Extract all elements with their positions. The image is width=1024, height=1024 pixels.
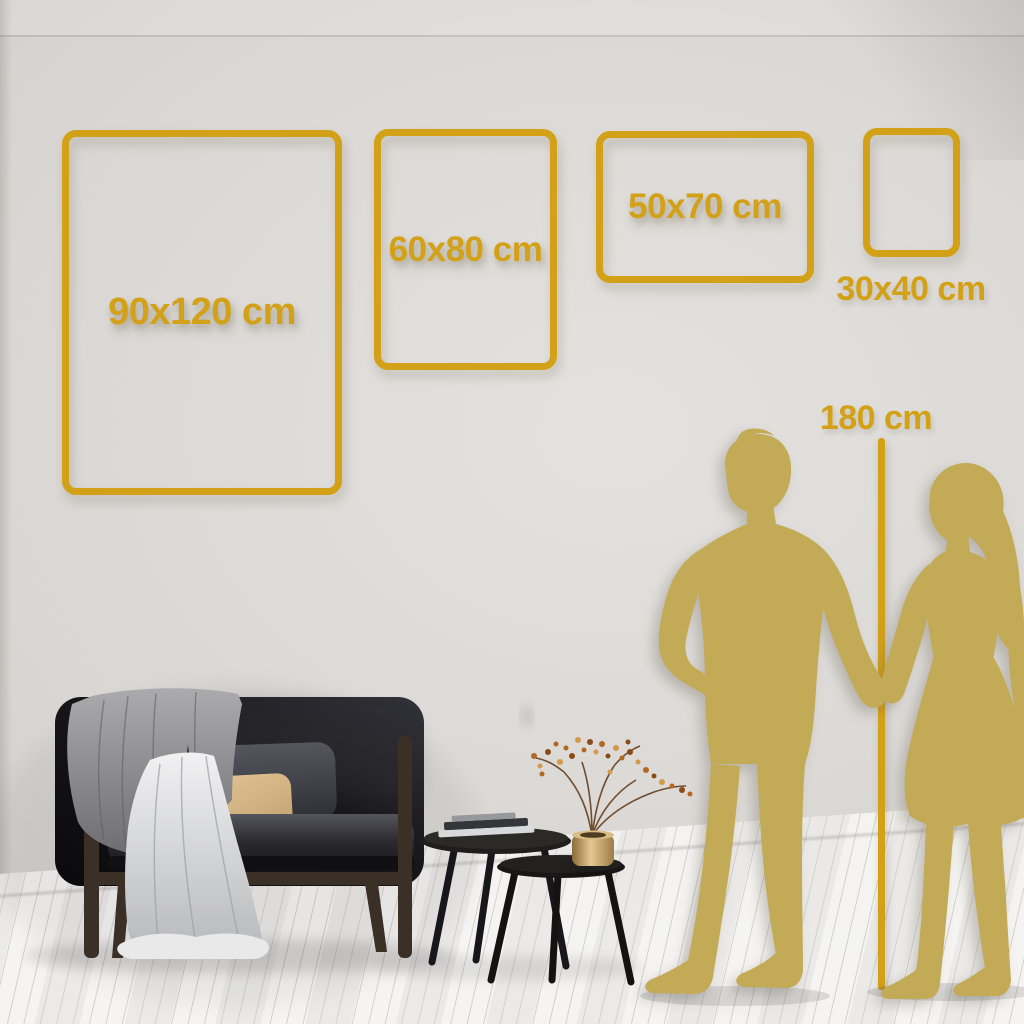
silhouette-layer <box>0 0 1024 1024</box>
size-guide-scene: 90x120 cm 60x80 cm 50x70 cm 30x40 cm 180… <box>0 0 1024 1024</box>
man-silhouette <box>645 429 886 994</box>
woman-silhouette <box>881 463 1024 999</box>
